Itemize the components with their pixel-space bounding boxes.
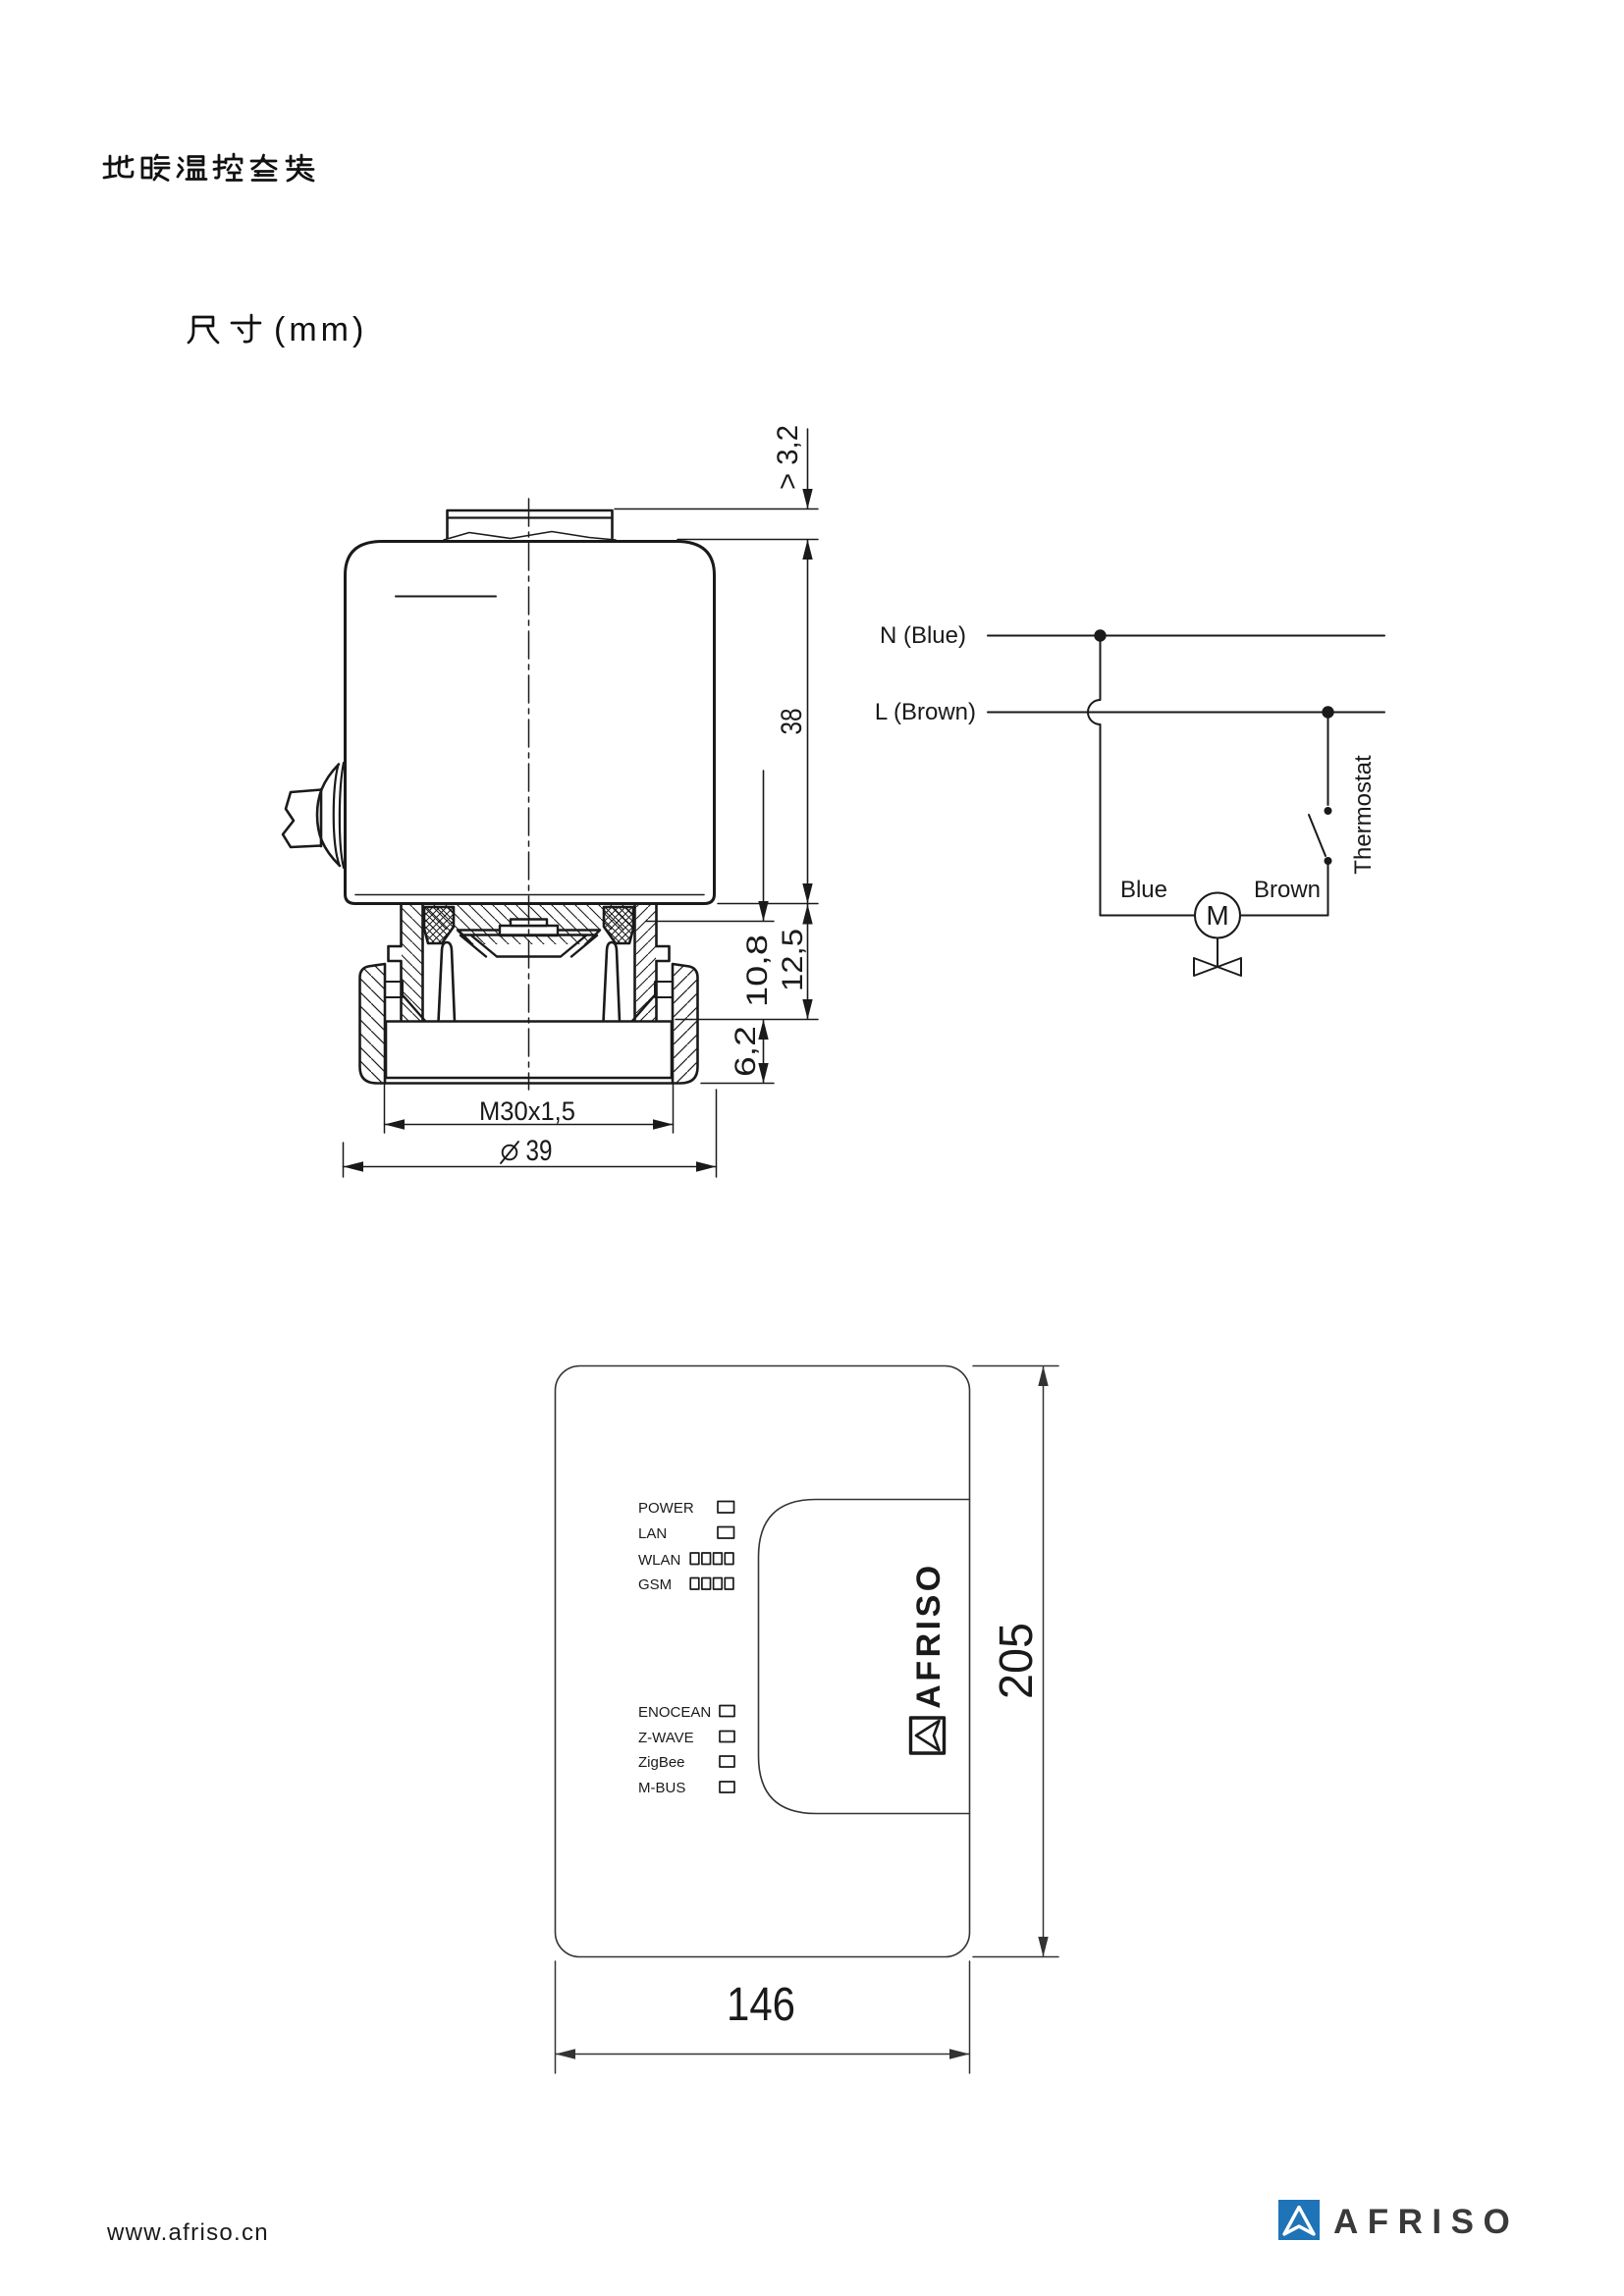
svg-text:> 3,2: > 3,2 [772, 425, 804, 490]
svg-text:AFRISO: AFRISO [1333, 2203, 1519, 2241]
svg-text:205: 205 [991, 1623, 1043, 1699]
svg-text:6,2: 6,2 [730, 1026, 762, 1077]
svg-text:AFRISO: AFRISO [910, 1562, 947, 1708]
svg-text:Thermostat: Thermostat [1350, 755, 1377, 875]
svg-text:M: M [1206, 900, 1228, 931]
svg-text:WLAN: WLAN [638, 1552, 680, 1569]
svg-text:Blue: Blue [1120, 877, 1167, 903]
svg-text:ENOCEAN: ENOCEAN [638, 1704, 711, 1721]
svg-text:LAN: LAN [638, 1525, 667, 1542]
svg-text:GSM: GSM [638, 1576, 672, 1593]
svg-text:www.afriso.cn: www.afriso.cn [106, 2219, 269, 2246]
svg-text:146: 146 [727, 1979, 795, 2031]
svg-text:10,8: 10,8 [741, 934, 774, 1007]
svg-text:Brown: Brown [1254, 877, 1321, 903]
svg-text:Z-WAVE: Z-WAVE [638, 1730, 694, 1746]
svg-text:39: 39 [526, 1135, 553, 1167]
svg-text:M30x1,5: M30x1,5 [479, 1096, 575, 1126]
svg-text:12,5: 12,5 [777, 929, 809, 991]
svg-text:38: 38 [776, 709, 808, 735]
svg-text:L (Brown): L (Brown) [875, 699, 976, 725]
svg-text:ZigBee: ZigBee [638, 1754, 685, 1771]
svg-text:M-BUS: M-BUS [638, 1780, 685, 1796]
svg-text:POWER: POWER [638, 1500, 694, 1517]
svg-text:N (Blue): N (Blue) [880, 622, 966, 649]
svg-text:(mm): (mm) [274, 311, 367, 348]
